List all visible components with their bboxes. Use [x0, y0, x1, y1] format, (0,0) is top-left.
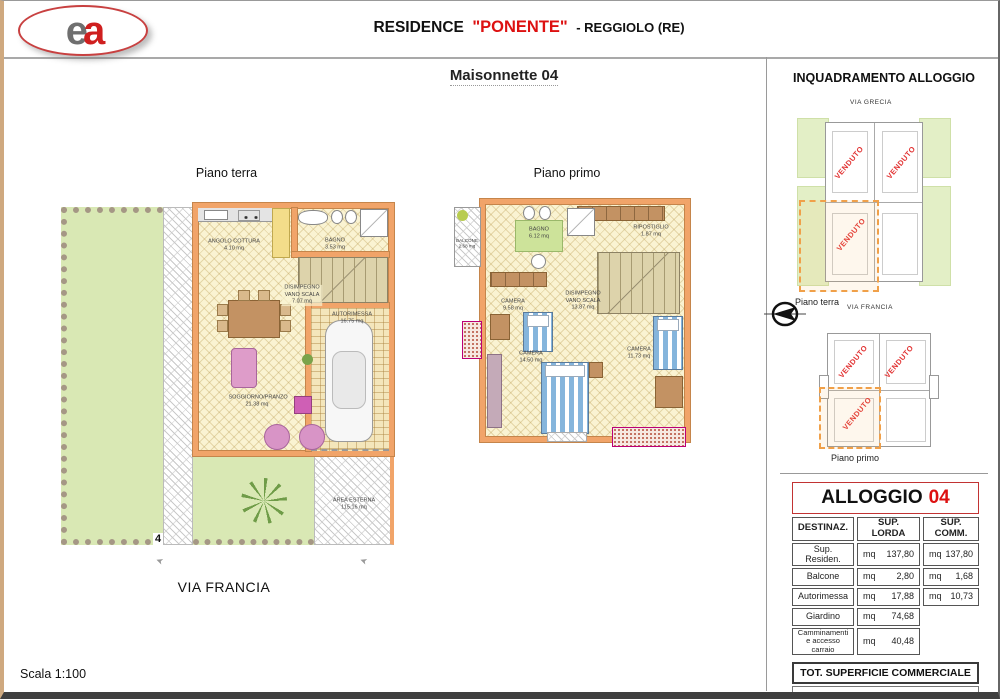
palm-tree-icon [241, 478, 287, 524]
logo-letter-a: a [83, 11, 100, 51]
bidet-icon [331, 210, 343, 224]
sofa [231, 348, 257, 388]
panel-divider [766, 57, 767, 691]
garden-rear [193, 456, 314, 545]
total-label: TOT. SUPERFICIE COMMERCIALE [792, 662, 979, 684]
chair [217, 320, 228, 332]
room-label-camera3: CAMERA 11.73 mq [617, 347, 661, 361]
chair [258, 290, 270, 301]
siteplan-piano-primo: VENDUTO VENDUTO VENDUTO [819, 329, 937, 449]
row-comm [923, 628, 979, 656]
row-comm: mq10,73 [923, 588, 979, 606]
room-label-soggiorno: SOGGIORNO/PRANZO 21.38 mq [228, 395, 285, 409]
street-label-via-francia-small: VIA FRANCIA [847, 304, 893, 311]
col-header-destinaz: DESTINAZ. [792, 517, 854, 541]
highlight-alloggio-04 [799, 200, 879, 292]
bed [653, 316, 683, 370]
piano-terra-plan: AREA ESTERNA 115.16 mq [61, 201, 394, 553]
dining-table [228, 300, 280, 338]
street-label-via-grecia: VIA GRECIA [850, 99, 892, 106]
chair [280, 304, 291, 316]
logo-letter-e: e [66, 11, 83, 51]
piano-primo-plan: BALCONE 2.68 mq [452, 199, 690, 446]
siteplan-piano-terra: VENDUTO VENDUTO VENDUTO [797, 108, 949, 294]
row-dest: Autorimessa [792, 588, 854, 606]
toilet-icon [345, 210, 357, 224]
garden [61, 207, 163, 545]
direction-arrow-icon: ➤ [154, 554, 165, 567]
piano-primo-title: Piano primo [502, 166, 632, 180]
house-piano-primo: BAGNO 6.12 mq RIPOSTIGLIO 1.87 mq DISIMP… [480, 199, 690, 442]
house-piano-terra: ANGOLO COTTURA 4.10 mq BAGNO 3.53 mq DIS… [193, 203, 394, 456]
alloggio-title: ALLOGGIO 04 [792, 482, 979, 514]
highlight-alloggio-04 [819, 387, 881, 449]
col-header-lorda: SUP. LORDA [857, 517, 920, 541]
toilet-icon [523, 206, 535, 220]
room-label-autorimessa: AUTORIMESSA 16.75 mq [326, 312, 378, 326]
shower-icon [360, 209, 388, 237]
stove-icon [238, 210, 260, 221]
wall [292, 208, 297, 252]
shower-icon [567, 208, 595, 236]
lot-number: 4 [153, 533, 163, 545]
chair [280, 320, 291, 332]
north-arrow-icon [764, 299, 806, 329]
panel-hr [780, 473, 988, 474]
walkway [163, 207, 193, 545]
bidet-icon [539, 206, 551, 220]
plan-sheet: ea RESIDENCE "PONENTE" - REGGIOLO (RE) M… [0, 0, 1000, 699]
inquadramento-title: INQUADRAMENTO ALLOGGIO [770, 71, 998, 85]
room-label-disimpegno-primo: DISIMPEGNO VANO SCALA 13.87 mq [559, 291, 607, 312]
balcony [547, 432, 587, 442]
armchair [264, 424, 290, 450]
document-title: RESIDENCE "PONENTE" - REGGIOLO (RE) [304, 18, 754, 37]
room-label-disimpegno: DISIMPEGNO VANO SCALA 7.07 mq [282, 285, 322, 306]
row-dest: Giardino [792, 608, 854, 626]
row-lorda: mq74,68 [857, 608, 920, 626]
armchair [299, 424, 325, 450]
header: ea RESIDENCE "PONENTE" - REGGIOLO (RE) [4, 1, 998, 59]
row-lorda: mq137,80 [857, 543, 920, 566]
row-dest: Sup. Residen. [792, 543, 854, 566]
room-label-balcone: BALCONE 2.68 mq [454, 239, 480, 251]
double-bed [541, 362, 589, 434]
kitchen-cabinet [272, 208, 290, 258]
room-label-area-esterna: AREA ESTERNA 115.16 mq [325, 498, 382, 512]
room-label-angolo-cottura: ANGOLO COTTURA 4.10 mq [205, 239, 264, 253]
balcony [462, 321, 482, 359]
wardrobe [487, 354, 502, 428]
bed [523, 312, 553, 352]
alloggio-table: ALLOGGIO 04 DESTINAZ. SUP. LORDA SUP. CO… [792, 482, 979, 699]
row-dest: Balcone [792, 568, 854, 586]
room-label-camera2: CAMERA 14.50 mq [511, 351, 551, 365]
pouf [294, 396, 312, 414]
room-label-camera1: CAMERA 9.58 mq [495, 299, 532, 313]
row-comm: mq137,80 [923, 543, 979, 566]
room-label-ripostiglio: RIPOSTIGLIO 1.87 mq [627, 225, 675, 239]
ea-logo: ea [18, 5, 148, 56]
nightstand [589, 362, 603, 378]
row-comm: mq1,68 [923, 568, 979, 586]
plant-icon [457, 210, 468, 221]
scale-label: Scala 1:100 [20, 667, 86, 681]
car-roof [332, 351, 366, 409]
street-label-via-francia: VIA FRANCIA [114, 579, 334, 595]
room-label-bagno-primo: BAGNO 6.12 mq [517, 227, 561, 241]
room-label-bagno: BAGNO 3.53 mq [316, 238, 355, 252]
row-lorda: mq40,48 [857, 628, 920, 656]
row-lorda: mq17,88 [857, 588, 920, 606]
title-residence: RESIDENCE [373, 19, 463, 36]
stairs [597, 252, 680, 314]
alloggio-number: 04 [929, 487, 950, 509]
terrace [612, 427, 686, 447]
balcony: BALCONE 2.68 mq [454, 207, 481, 267]
wardrobe [490, 272, 547, 287]
area-esterna: AREA ESTERNA 115.16 mq [314, 454, 394, 545]
col-header-comm: SUP. COMM. [923, 517, 979, 541]
car-icon [325, 320, 373, 442]
plant-icon [302, 354, 313, 365]
total-value: 150,21mq [792, 686, 979, 699]
chair [217, 304, 228, 316]
piano-terra-title: Piano terra [159, 166, 294, 180]
sink-icon [531, 254, 546, 269]
row-comm [923, 608, 979, 626]
desk [655, 376, 683, 408]
direction-arrow-icon: ➤ [358, 554, 369, 567]
sink-icon [204, 210, 228, 220]
bathtub-icon [298, 210, 328, 225]
page-title: Maisonnette 04 [384, 67, 624, 84]
row-lorda: mq2,80 [857, 568, 920, 586]
chair [238, 290, 250, 301]
title-location: - REGGIOLO (RE) [576, 20, 684, 35]
row-dest: Camminamenti e accesso carraio [792, 628, 854, 656]
desk [490, 314, 510, 340]
siteplan2-label: Piano primo [831, 453, 879, 463]
title-name: "PONENTE" [472, 18, 567, 36]
